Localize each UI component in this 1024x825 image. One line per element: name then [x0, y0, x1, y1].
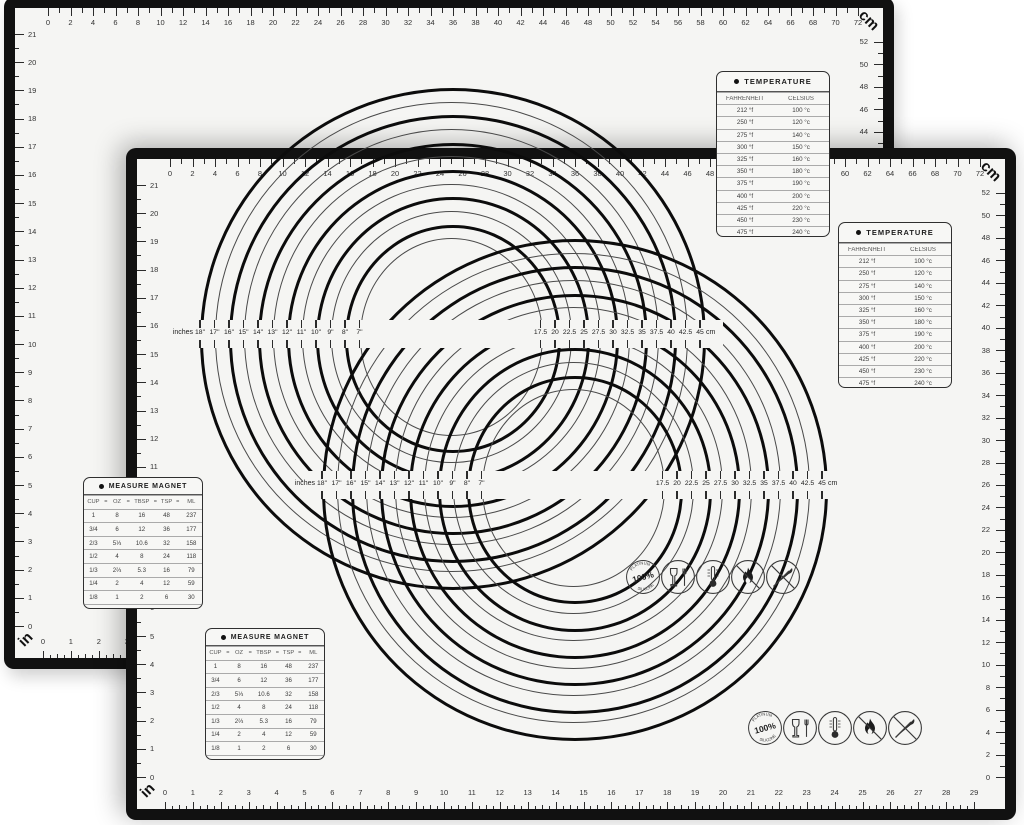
ruler-tick — [563, 806, 564, 809]
ring-cm-label: 25 — [580, 329, 588, 336]
ruler-number: 6 — [113, 18, 117, 27]
ring-stub-tick — [792, 491, 795, 499]
ruler-tick — [284, 806, 285, 809]
ruler-number: 44 — [539, 18, 547, 27]
ruler-tick — [416, 802, 417, 809]
ruler-number: 60 — [719, 18, 727, 27]
measure-column-header: TBSP — [253, 650, 274, 656]
ruler-tick — [64, 655, 65, 658]
ruler-number: 1 — [191, 788, 195, 797]
ring-stub-tick — [243, 320, 244, 328]
ruler-tick — [996, 777, 1005, 778]
ruler-tick — [996, 215, 1005, 216]
ruler-tick — [120, 655, 121, 658]
temperature-row: 450 °f230 °c — [839, 365, 951, 377]
ring-inch-label: 7" — [356, 329, 362, 336]
ruler-tick — [161, 8, 162, 16]
measure-row: 181648237 — [84, 509, 202, 523]
ruler-tick — [874, 87, 883, 88]
ruler-tick — [486, 805, 487, 810]
ruler-tick — [709, 805, 710, 810]
ruler-number: 2 — [97, 637, 101, 646]
temperature-row: 400 °f200 °c — [717, 190, 829, 202]
ruler-number: 14 — [150, 378, 158, 387]
ruler-tick — [15, 62, 24, 63]
ring-stub-tick — [379, 471, 382, 479]
measure-value: 2/3 — [206, 691, 225, 698]
ruler-number: 4 — [28, 509, 32, 518]
ruler-tick — [15, 556, 19, 557]
ring-left-unit-label: inches — [257, 480, 315, 487]
ruler-tick — [137, 368, 141, 369]
measure-value: 4 — [253, 731, 274, 738]
temperature-value: 120 °c — [895, 270, 951, 277]
ruler-number: 26 — [970, 480, 990, 489]
ring-cm-label: 32.5 — [621, 329, 634, 336]
ruler-tick — [493, 806, 494, 809]
ring-stub-tick — [437, 471, 440, 479]
measure-value: 158 — [303, 691, 324, 698]
ruler-number: 16 — [28, 170, 36, 179]
ruler-tick — [507, 806, 508, 809]
ruler-number: 5 — [28, 481, 32, 490]
ring-stub-tick — [272, 320, 273, 328]
ruler-tick — [1000, 361, 1005, 362]
ruler-tick — [897, 806, 898, 809]
temperature-value: 425 °f — [717, 205, 773, 212]
ring-inch-label: 14" — [375, 480, 385, 487]
ring-stub-tick — [569, 320, 570, 328]
temperature-row: 475 °f240 °c — [839, 377, 951, 388]
measure-value: 1 — [206, 663, 225, 670]
ruler-tick — [1000, 317, 1005, 318]
ring-stub-tick — [662, 471, 663, 479]
ruler-number: 19 — [150, 237, 158, 246]
ruler-tick — [1000, 496, 1005, 497]
ruler-tick — [821, 805, 822, 810]
ruler-tick — [15, 485, 24, 486]
measure-value: 1/2 — [231, 759, 248, 760]
ring-inch-label: 9" — [327, 329, 333, 336]
ruler-tick — [15, 316, 24, 317]
ruler-number: 8 — [386, 788, 390, 797]
temperature-value: 140 °c — [895, 283, 951, 290]
ring-stub-tick — [676, 471, 679, 479]
ruler-number: 18 — [970, 570, 990, 579]
ruler-number: 36 — [970, 368, 990, 377]
ruler-tick — [137, 622, 141, 623]
ruler-tick — [521, 806, 522, 809]
ruler-tick — [665, 159, 666, 167]
ruler-number: 7 — [358, 788, 362, 797]
temperature-row: 275 °f140 °c — [839, 280, 951, 292]
temperature-row: 300 °f150 °c — [717, 141, 829, 153]
ruler-tick — [878, 98, 883, 99]
measure-value: 1/2 — [206, 704, 225, 711]
no-knife-icon-svg — [887, 710, 923, 746]
ruler-tick — [311, 806, 312, 809]
ruler-tick — [842, 806, 843, 809]
ring-stub-tick — [272, 340, 273, 348]
ruler-tick — [149, 8, 150, 13]
ruler-tick — [386, 8, 387, 16]
ruler-tick — [876, 805, 877, 810]
ruler-tick — [549, 806, 550, 809]
ring-stub-tick — [569, 340, 570, 348]
ring-stub-tick — [705, 491, 708, 499]
ring-cm-label: 35 — [760, 480, 768, 487]
measure-value: 2 — [253, 745, 274, 752]
ruler-number: 21 — [150, 181, 158, 190]
ruler-tick — [535, 806, 536, 809]
ring-cm-label: 27.5 — [592, 329, 605, 336]
ruler-tick — [15, 415, 19, 416]
ring-stub-tick — [214, 340, 215, 348]
ring-cm-label: 40 — [667, 329, 675, 336]
ruler-tick — [542, 805, 543, 810]
ruler-tick — [465, 806, 466, 809]
measure-value: 30 — [181, 594, 202, 601]
measure-magnet-title-text: MEASURE MAGNET — [109, 483, 187, 490]
ruler-tick — [296, 8, 297, 16]
ruler-tick — [646, 806, 647, 809]
ruler-tick — [514, 805, 515, 810]
temperature-value: 230 °c — [773, 217, 829, 224]
temperature-row: 212 °f100 °c — [839, 255, 951, 267]
ruler-tick — [78, 655, 79, 658]
measure-value: 36 — [158, 526, 175, 533]
ruler-number: 50 — [606, 18, 614, 27]
ruler-tick — [137, 678, 141, 679]
ruler-tick — [836, 8, 837, 16]
ring-stub-tick — [734, 491, 737, 499]
temperature-value: 450 °f — [717, 217, 773, 224]
ruler-tick — [913, 159, 914, 167]
ruler-tick — [878, 121, 883, 122]
ruler-tick — [996, 597, 1005, 598]
thermometer-icon-svg — [695, 559, 731, 595]
ring-stub-tick — [257, 320, 260, 328]
ruler-number: 40 — [494, 18, 502, 27]
ruler-tick — [1000, 676, 1005, 677]
ruler-tick — [263, 805, 264, 810]
ruler-tick — [15, 386, 19, 387]
measure-value: 6 — [280, 745, 297, 752]
temperature-row: 212 °f100 °c — [717, 104, 829, 116]
ring-stub-tick — [691, 491, 692, 499]
ruler-number: 12 — [28, 283, 36, 292]
ring-cm-label: 45 — [696, 329, 704, 336]
measure-column-header: CUP — [206, 650, 225, 656]
ruler-tick — [137, 213, 146, 214]
ring-stub-tick — [641, 320, 644, 328]
measure-value: 1/8 — [206, 745, 225, 752]
measure-row: 2/35⅓10.632158 — [84, 536, 202, 550]
temperature-value: 250 °f — [717, 119, 773, 126]
ruler-number: 27 — [914, 788, 922, 797]
ruler-tick — [15, 372, 24, 373]
ruler-tick — [15, 330, 19, 331]
temperature-row: 375 °f190 °c — [839, 328, 951, 340]
ring-right-unit-label: cm — [706, 329, 715, 336]
measure-column-header: TSP — [280, 650, 297, 656]
measure-value: 3 — [280, 759, 297, 760]
ruler-tick — [958, 159, 959, 167]
ring-inch-label: 7" — [478, 480, 484, 487]
ruler-tick — [137, 721, 146, 722]
measure-value: 118 — [181, 553, 202, 560]
ruler-tick — [890, 802, 891, 809]
ruler-tick — [716, 806, 717, 809]
ruler-tick — [104, 8, 105, 13]
ring-stub-tick — [257, 340, 260, 348]
ruler-tick — [874, 42, 883, 43]
ruler-tick — [206, 8, 207, 16]
ruler-tick — [238, 159, 239, 167]
ruler-tick — [15, 231, 24, 232]
ruler-number: 3 — [150, 688, 154, 697]
ruler-tick — [974, 802, 975, 809]
ruler-tick — [633, 8, 634, 16]
ruler-tick — [57, 654, 58, 659]
measure-value: 8 — [131, 553, 152, 560]
ruler-tick — [856, 806, 857, 809]
silicone-badge-icon-svg: PLATINUMSILICONE100% — [747, 710, 783, 746]
ruler-number: 64 — [886, 169, 894, 178]
measure-magnet-title-text: MEASURE MAGNET — [231, 634, 309, 641]
temperature-value: 275 °f — [717, 132, 773, 139]
ruler-tick — [500, 802, 501, 809]
ruler-number: 16 — [970, 593, 990, 602]
measure-column-header: OZ — [109, 499, 126, 505]
ruler-tick — [137, 692, 146, 693]
ruler-tick — [710, 159, 711, 167]
temperature-value: 150 °c — [895, 295, 951, 302]
ruler-tick — [137, 763, 141, 764]
measure-value: 48 — [158, 512, 175, 519]
ruler-tick — [1000, 384, 1005, 385]
ruler-tick — [639, 802, 640, 809]
ruler-tick — [689, 8, 690, 13]
measure-value: 5⅓ — [231, 691, 248, 698]
ruler-number: 9 — [28, 368, 32, 377]
temperature-value: 140 °c — [773, 132, 829, 139]
ruler-tick — [408, 8, 409, 16]
measure-value: 24 — [280, 704, 297, 711]
temperature-row: 400 °f200 °c — [839, 341, 951, 353]
ruler-tick — [15, 513, 24, 514]
ruler-number: 2 — [68, 18, 72, 27]
ruler-number: 13 — [150, 406, 158, 415]
ruler-tick — [277, 802, 278, 809]
ruler-tick — [786, 806, 787, 809]
ruler-tick — [712, 8, 713, 13]
ruler-number: 10 — [28, 340, 36, 349]
ruler-tick — [137, 255, 141, 256]
ring-stub-tick — [452, 471, 453, 479]
ruler-number: 0 — [163, 788, 167, 797]
ring-stub-tick — [656, 320, 657, 328]
ruler-tick — [15, 189, 19, 190]
ruler-tick — [442, 8, 443, 13]
ring-stub-tick — [359, 340, 360, 348]
ruler-tick — [15, 76, 19, 77]
ruler-number: 6 — [330, 788, 334, 797]
ruler-tick — [204, 159, 205, 164]
ruler-number: 15 — [150, 350, 158, 359]
no-knife-icon — [887, 710, 923, 746]
ring-inch-label: 17" — [210, 329, 220, 336]
ruler-tick — [1000, 474, 1005, 475]
ring-left-unit-label: inches — [135, 329, 193, 336]
ruler-tick — [113, 654, 114, 659]
ruler-tick — [15, 133, 19, 134]
ruler-tick — [996, 485, 1005, 486]
ruler-number: 10 — [440, 788, 448, 797]
ruler-tick — [431, 8, 432, 16]
ruler-tick — [996, 710, 1005, 711]
ruler-number: 13 — [524, 788, 532, 797]
ring-cm-label: 37.5 — [650, 329, 663, 336]
ruler-number: 23 — [803, 788, 811, 797]
measure-value: 32 — [158, 540, 175, 547]
ruler-tick — [381, 806, 382, 809]
ring-stub-tick — [481, 491, 482, 499]
ruler-tick — [59, 8, 60, 13]
ruler-tick — [419, 8, 420, 13]
ruler-number: 40 — [970, 323, 990, 332]
ruler-tick — [863, 802, 864, 809]
ruler-tick — [765, 805, 766, 810]
ruler-number: 18 — [150, 265, 158, 274]
temperature-value: 220 °c — [895, 356, 951, 363]
temperature-value: 212 °f — [839, 258, 895, 265]
ring-stub-tick — [821, 491, 824, 499]
ruler-tick — [137, 227, 141, 228]
ruler-tick — [932, 805, 933, 810]
ruler-tick — [305, 802, 306, 809]
ruler-tick — [734, 8, 735, 13]
ruler-tick — [618, 806, 619, 809]
measure-value: 1/3 — [84, 567, 103, 574]
ring-stub-tick — [321, 471, 324, 479]
ruler-number: 15 — [579, 788, 587, 797]
no-open-flame-icon-svg — [852, 710, 888, 746]
ruler-tick — [251, 8, 252, 16]
ruler-tick — [15, 612, 19, 613]
ruler-tick — [332, 802, 333, 809]
ring-stub-tick — [228, 340, 231, 348]
measure-value: 1/4 — [84, 580, 103, 587]
ruler-tick — [996, 328, 1005, 329]
ruler-number: 54 — [651, 18, 659, 27]
temperature-value: 475 °f — [839, 380, 895, 387]
ring-inch-label: 13" — [390, 480, 400, 487]
ring-cm-label: 17.5 — [534, 329, 547, 336]
ruler-number: 10 — [156, 18, 164, 27]
ruler-tick — [329, 8, 330, 13]
measure-column-header: CUP — [84, 499, 103, 505]
ruler-tick — [604, 806, 605, 809]
ruler-tick — [611, 802, 612, 809]
temperature-value: 325 °f — [717, 156, 773, 163]
ring-stub-tick — [336, 491, 337, 499]
measure-value: 1 — [131, 608, 152, 609]
ruler-number: 16 — [224, 18, 232, 27]
temperature-value: 325 °f — [839, 307, 895, 314]
ruler-tick — [262, 8, 263, 13]
ruler-tick — [137, 650, 141, 651]
measure-value: 1/2 — [109, 608, 126, 609]
ring-cm-label: 30 — [731, 480, 739, 487]
ruler-tick — [137, 467, 146, 468]
ruler-tick — [200, 806, 201, 809]
ring-stub-tick — [379, 491, 382, 499]
ruler-number: 5 — [302, 788, 306, 797]
ruler-number: 7 — [28, 424, 32, 433]
measure-value: 6 — [109, 526, 126, 533]
ruler-tick — [402, 805, 403, 810]
ruler-number: 4 — [970, 728, 990, 737]
temperature-value: 300 °f — [839, 295, 895, 302]
ruler-tick — [813, 8, 814, 16]
ruler-number: 2 — [150, 716, 154, 725]
measure-value: 48 — [280, 663, 297, 670]
temperature-value: 275 °f — [839, 283, 895, 290]
ruler-tick — [228, 8, 229, 16]
ruler-tick — [577, 806, 578, 809]
ruler-tick — [570, 805, 571, 810]
ruler-tick — [374, 805, 375, 810]
ring-stub-tick — [685, 340, 686, 348]
ring-cm-label: 42.5 — [679, 329, 692, 336]
food-safe-icon — [782, 710, 818, 746]
ruler-tick — [1000, 204, 1005, 205]
temperature-value: 240 °c — [895, 380, 951, 387]
temperature-value: 190 °c — [895, 331, 951, 338]
ruler-number: 26 — [886, 788, 894, 797]
ruler-tick — [207, 805, 208, 810]
ruler-tick — [291, 805, 292, 810]
ruler-tick — [528, 802, 529, 809]
ruler-tick — [453, 8, 454, 16]
ring-stub-tick — [330, 320, 331, 328]
ring-cm-label: 35 — [638, 329, 646, 336]
ring-stub-tick — [466, 471, 469, 479]
temperature-value: 425 °f — [839, 356, 895, 363]
ruler-number: 24 — [970, 503, 990, 512]
ruler-number: 26 — [336, 18, 344, 27]
ruler-tick — [566, 8, 567, 16]
ruler-tick — [464, 8, 465, 13]
measure-value: 1 — [253, 759, 274, 760]
ruler-number: 11 — [468, 788, 476, 797]
ruler-number: 2 — [970, 750, 990, 759]
measure-value: 237 — [303, 663, 324, 670]
ruler-tick — [996, 642, 1005, 643]
ruler-tick — [85, 654, 86, 659]
temperature-panel-title: TEMPERATURE — [717, 72, 829, 92]
ruler-tick — [99, 651, 100, 658]
in-unit-label: in — [15, 629, 36, 650]
ring-inch-label: 11" — [419, 480, 428, 487]
measure-value: 16 — [131, 512, 152, 519]
temperature-value: 400 °f — [839, 344, 895, 351]
measure-row: 1/812630 — [206, 741, 324, 755]
ring-stub-tick — [705, 471, 708, 479]
temperature-value: 375 °f — [717, 180, 773, 187]
ring-cm-label: 42.5 — [801, 480, 814, 487]
